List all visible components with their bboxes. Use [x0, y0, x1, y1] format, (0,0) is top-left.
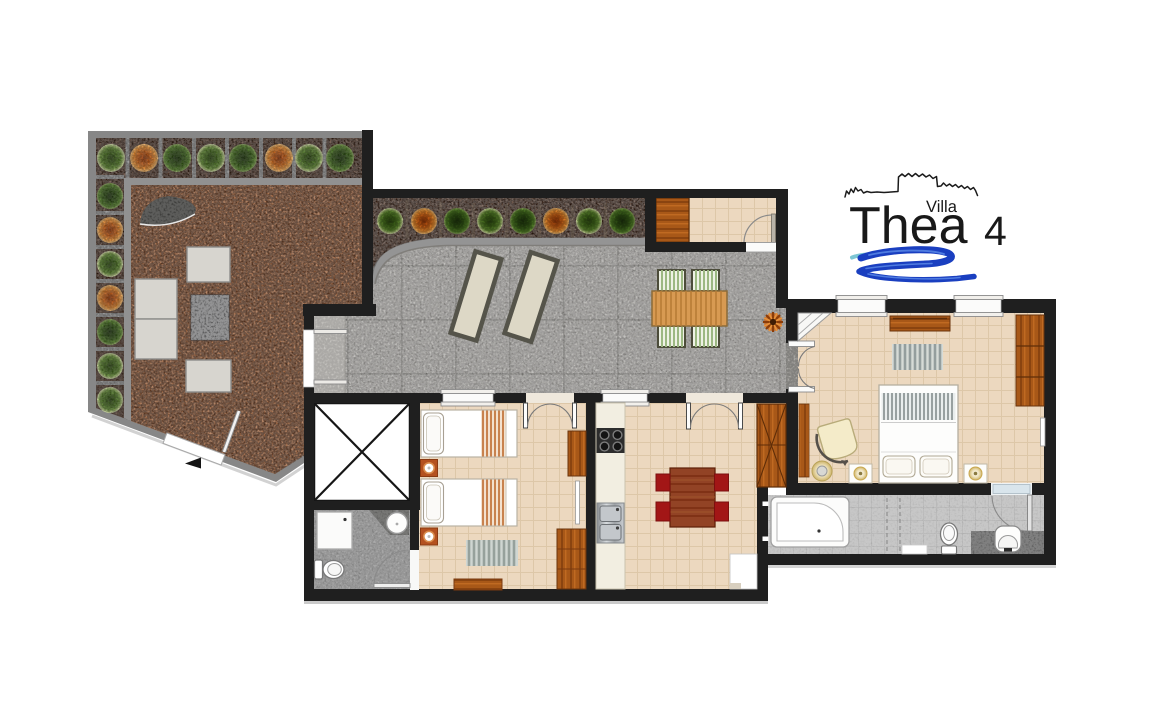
svg-text:4: 4: [984, 208, 1007, 254]
svg-text:Thea: Thea: [849, 197, 968, 255]
